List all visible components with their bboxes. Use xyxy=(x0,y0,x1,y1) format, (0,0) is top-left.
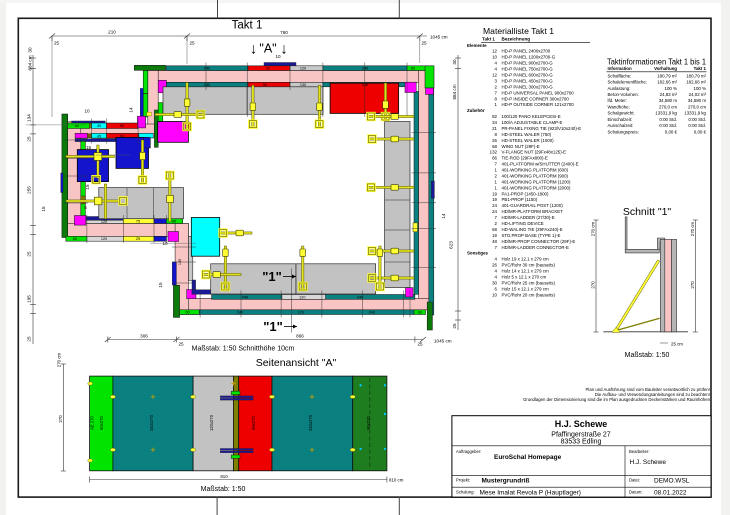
svg-text:1045 cm: 1045 cm xyxy=(434,339,452,344)
svg-text:Schalelementfläche:: Schalelementfläche: xyxy=(608,80,648,85)
svg-text:DEMO.WSL: DEMO.WSL xyxy=(654,478,690,485)
svg-text:90: 90 xyxy=(120,134,124,138)
svg-text:195: 195 xyxy=(27,295,32,303)
svg-text:401-WORKING PLATFORM (600): 401-WORKING PLATFORM (600) xyxy=(502,168,569,173)
svg-text:401-GUARDRAIL POST (1200): 401-GUARDRAIL POST (1200) xyxy=(502,203,564,208)
svg-text:H.J. Schewe: H.J. Schewe xyxy=(555,419,608,429)
svg-text:306: 306 xyxy=(140,334,148,339)
svg-text:WING NUT (29F)-E: WING NUT (29F)-E xyxy=(502,144,540,149)
svg-text:20: 20 xyxy=(266,66,270,70)
svg-text:60: 60 xyxy=(185,311,189,315)
svg-text:Schalfläche:: Schalfläche: xyxy=(608,73,632,78)
svg-text:25: 25 xyxy=(178,342,184,347)
svg-text:255: 255 xyxy=(27,186,32,194)
svg-text:PA1-PROP (1450-1800): PA1-PROP (1450-1800) xyxy=(502,191,549,196)
svg-text:45: 45 xyxy=(97,134,101,138)
svg-text:PB1-PROP (1150): PB1-PROP (1150) xyxy=(502,197,538,202)
svg-text:760: 760 xyxy=(280,30,288,35)
svg-text:240: 240 xyxy=(242,296,248,300)
svg-text:25: 25 xyxy=(452,323,457,329)
svg-text:Zubehör: Zubehör xyxy=(467,108,485,113)
svg-text:401-WORKING PLATFORM (2000): 401-WORKING PLATFORM (2000) xyxy=(502,185,572,190)
svg-text:Takt 1: Takt 1 xyxy=(232,20,263,32)
svg-text:68: 68 xyxy=(492,227,497,232)
svg-text:0,00 €: 0,00 € xyxy=(665,129,678,134)
svg-text:10: 10 xyxy=(162,241,168,246)
svg-text:Einschalzeit:: Einschalzeit: xyxy=(608,117,633,122)
svg-text:Elemente: Elemente xyxy=(467,43,487,48)
svg-text:V-FLANGE NUT (29Fx48x125)-E: V-FLANGE NUT (29Fx48x125)-E xyxy=(502,150,567,155)
svg-text:623: 623 xyxy=(449,241,454,249)
svg-text:30: 30 xyxy=(28,47,33,53)
svg-text:270: 270 xyxy=(591,281,596,289)
svg-text:25: 25 xyxy=(27,251,32,257)
svg-text:30: 30 xyxy=(452,59,457,65)
svg-text:60: 60 xyxy=(411,66,415,70)
svg-text:08.01.2022: 08.01.2022 xyxy=(654,490,687,497)
svg-text:Holz 5 x 12.1 x 270 cm: Holz 5 x 12.1 x 270 cm xyxy=(502,275,547,280)
svg-text:HD/MR-LADDER (27/30)-E: HD/MR-LADDER (27/30)-E xyxy=(502,215,555,220)
svg-text:60x270: 60x270 xyxy=(99,415,104,429)
svg-text:90: 90 xyxy=(120,124,124,128)
svg-text:HD-P PANEL 900x2700-G: HD-P PANEL 900x2700-G xyxy=(502,61,554,66)
svg-text:19: 19 xyxy=(492,191,497,196)
svg-text:HD-P PANEL 300x2700-G: HD-P PANEL 300x2700-G xyxy=(502,84,554,89)
svg-text:HD-P UNIVERSAL PANEL 900x2700: HD-P UNIVERSAL PANEL 900x2700 xyxy=(502,90,575,95)
svg-text:"A": "A" xyxy=(259,42,276,56)
svg-text:66: 66 xyxy=(492,156,497,161)
svg-text:Wandhöhe:: Wandhöhe: xyxy=(608,105,630,110)
svg-text:HD/MR-LADDER CONNECTOR-E: HD/MR-LADDER CONNECTOR-E xyxy=(502,245,570,250)
svg-text:AE 270: AE 270 xyxy=(90,415,95,429)
svg-text:Materialliste Takt 1: Materialliste Takt 1 xyxy=(483,26,554,36)
svg-text:24,82 m³: 24,82 m³ xyxy=(660,92,678,97)
svg-text:12: 12 xyxy=(492,73,497,78)
svg-text:120: 120 xyxy=(101,237,107,241)
svg-text:Sonstiges: Sonstiges xyxy=(467,251,489,256)
svg-text:"1": "1" xyxy=(262,269,282,284)
svg-text:25: 25 xyxy=(27,336,32,342)
svg-text:60: 60 xyxy=(418,311,422,315)
svg-text:Mustergrundriß: Mustergrundriß xyxy=(482,478,530,485)
svg-text:HD-P PANEL 450x2700-G: HD-P PANEL 450x2700-G xyxy=(502,78,554,83)
svg-text:26: 26 xyxy=(492,138,497,143)
svg-text:21: 21 xyxy=(492,126,497,131)
svg-text:182,66 m²: 182,66 m² xyxy=(686,80,706,85)
svg-text:Maßstab: 1:50 Schnitthöhe 1: Maßstab: 1:50 Schnitthöhe 10cm xyxy=(192,346,295,353)
svg-text:240: 240 xyxy=(204,83,210,87)
svg-text:83533 Edling: 83533 Edling xyxy=(561,439,602,446)
svg-text:45: 45 xyxy=(97,124,101,128)
svg-text:270,0 cm: 270,0 cm xyxy=(688,105,706,110)
svg-text:0:00 Std.: 0:00 Std. xyxy=(688,117,706,122)
svg-text:HD-P PANEL 750x2700-G: HD-P PANEL 750x2700-G xyxy=(502,67,554,72)
svg-text:34: 34 xyxy=(492,120,497,125)
svg-text:25: 25 xyxy=(421,41,427,46)
svg-text:240x270: 240x270 xyxy=(308,414,313,431)
svg-text:Schalungspreis:: Schalungspreis: xyxy=(608,129,639,134)
svg-text:15: 15 xyxy=(41,206,46,212)
svg-text:10: 10 xyxy=(275,54,281,59)
svg-text:25: 25 xyxy=(136,237,140,241)
svg-text:0:00 Std.: 0:00 Std. xyxy=(688,123,706,128)
svg-text:"1": "1" xyxy=(263,319,283,334)
svg-text:HD-P PANEL 1200x2700-G: HD-P PANEL 1200x2700-G xyxy=(502,55,556,60)
svg-text:Takt 1: Takt 1 xyxy=(482,37,495,42)
svg-text:Pfaffingerstraße 27: Pfaffingerstraße 27 xyxy=(551,432,611,439)
svg-text:68: 68 xyxy=(492,144,497,149)
svg-text:100 %: 100 % xyxy=(665,86,678,91)
svg-text:Holz 15 x 12.1 x 279 cm: Holz 15 x 12.1 x 279 cm xyxy=(502,286,549,291)
svg-text:↓: ↓ xyxy=(250,41,258,58)
svg-text:1045 cm: 1045 cm xyxy=(430,35,448,40)
svg-text:120x270: 120x270 xyxy=(209,414,214,431)
svg-text:130: 130 xyxy=(178,259,182,265)
svg-text:25: 25 xyxy=(27,136,32,142)
svg-text:HD/MR-PROP CONNECTOR (29F)-E: HD/MR-PROP CONNECTOR (29F)-E xyxy=(502,239,576,244)
svg-text:HD-LIFTING DEVICE: HD-LIFTING DEVICE xyxy=(502,221,544,226)
svg-text:120: 120 xyxy=(101,220,107,224)
svg-text:Seitenansicht "A": Seitenansicht "A" xyxy=(256,357,337,369)
svg-text:Ausschalzeit:: Ausschalzeit: xyxy=(608,123,634,128)
svg-text:240x270: 240x270 xyxy=(149,414,154,431)
svg-text:14: 14 xyxy=(129,107,134,113)
svg-text:HD-P PANEL 2400x2700: HD-P PANEL 2400x2700 xyxy=(502,49,551,54)
svg-text:↓: ↓ xyxy=(280,41,288,58)
svg-text:PR-PANEL FIXING TIE (923/V10x2: PR-PANEL FIXING TIE (923/V10x240)-E xyxy=(502,126,582,131)
svg-text:60: 60 xyxy=(73,237,77,241)
svg-text:182,66 m²: 182,66 m² xyxy=(657,80,677,85)
svg-text:34,580 m: 34,580 m xyxy=(688,98,707,103)
svg-text:401-WORKING PLATFORM (1200): 401-WORKING PLATFORM (1200) xyxy=(502,179,572,184)
svg-text:134: 134 xyxy=(27,114,32,122)
svg-text:14: 14 xyxy=(441,213,446,219)
svg-text:Maßstab: 1:50: Maßstab: 1:50 xyxy=(625,352,670,359)
svg-text:19: 19 xyxy=(492,233,497,238)
svg-text:90x270: 90x270 xyxy=(251,415,256,429)
svg-text:120: 120 xyxy=(299,296,305,300)
svg-text:HD-WALING TIE (29FAx240)-E: HD-WALING TIE (29FAx240)-E xyxy=(502,227,563,232)
svg-text:25: 25 xyxy=(189,41,195,46)
svg-text:48: 48 xyxy=(492,239,497,244)
svg-text:Datum:: Datum: xyxy=(629,490,643,495)
svg-text:90x270: 90x270 xyxy=(366,415,371,429)
svg-text:Beton-Volumen:: Beton-Volumen: xyxy=(608,92,639,97)
svg-text:Holz 19 x 12.1 x 279 cm: Holz 19 x 12.1 x 279 cm xyxy=(502,257,549,262)
svg-text:PVC/Rohr 20 cm (bauseits): PVC/Rohr 20 cm (bauseits) xyxy=(502,292,556,297)
svg-text:13331,9 kg: 13331,9 kg xyxy=(655,111,677,116)
svg-text:210: 210 xyxy=(108,30,116,35)
svg-text:Bearbeiter:: Bearbeiter: xyxy=(629,449,649,454)
svg-text:30: 30 xyxy=(492,280,497,285)
svg-text:HD/MR-PLATFORM BRACKET: HD/MR-PLATFORM BRACKET xyxy=(502,209,564,214)
svg-text:270 cm: 270 cm xyxy=(57,352,62,367)
svg-text:120: 120 xyxy=(298,311,304,315)
svg-text:240: 240 xyxy=(357,296,363,300)
svg-text:Information: Information xyxy=(608,66,632,71)
svg-text:Grundlagen der Dimensionierung: Grundlagen der Dimensionierung sind die … xyxy=(523,397,711,402)
svg-text:75: 75 xyxy=(136,220,140,224)
svg-text:HD-P PANEL 600x2700-G: HD-P PANEL 600x2700-G xyxy=(502,73,554,78)
svg-text:HD-P OUTSIDE CORNER 121x2700: HD-P OUTSIDE CORNER 121x2700 xyxy=(502,102,575,107)
svg-text:401-WORKING PLATFORM (900): 401-WORKING PLATFORM (900) xyxy=(502,174,569,179)
svg-text:HD-P INSIDE CORNER 300x2700: HD-P INSIDE CORNER 300x2700 xyxy=(502,96,570,101)
svg-text:684 cm: 684 cm xyxy=(28,55,33,70)
svg-text:HD-STEEL WALER (1000): HD-STEEL WALER (1000) xyxy=(502,138,555,143)
svg-text:82: 82 xyxy=(492,114,497,119)
svg-text:130: 130 xyxy=(300,83,306,87)
svg-text:24: 24 xyxy=(492,209,497,214)
svg-text:19: 19 xyxy=(492,197,497,202)
svg-text:10: 10 xyxy=(492,292,497,297)
svg-text:120: 120 xyxy=(300,66,306,70)
svg-text:240: 240 xyxy=(362,66,368,70)
svg-text:lfd. Meter:: lfd. Meter: xyxy=(608,98,628,103)
svg-text:EuroSchal Homepage: EuroSchal Homepage xyxy=(494,454,562,461)
svg-text:866: 866 xyxy=(296,334,304,339)
svg-text:810: 810 xyxy=(220,474,228,479)
svg-text:240: 240 xyxy=(237,311,243,315)
svg-text:12: 12 xyxy=(492,49,497,54)
svg-text:100 %: 100 % xyxy=(694,86,707,91)
svg-text:Schnitt "1": Schnitt "1" xyxy=(623,206,672,218)
svg-text:Maßstab: 1:50: Maßstab: 1:50 xyxy=(201,486,246,493)
svg-text:180,79 m²: 180,79 m² xyxy=(686,73,706,78)
svg-text:132: 132 xyxy=(490,150,498,155)
svg-text:Schalgewicht:: Schalgewicht: xyxy=(608,111,635,116)
svg-text:15: 15 xyxy=(86,145,92,150)
svg-text:24,02 m³: 24,02 m³ xyxy=(689,92,707,97)
svg-text:Takt 1: Takt 1 xyxy=(694,66,707,71)
svg-text:Projekt:: Projekt: xyxy=(456,478,470,483)
svg-text:810 cm: 810 cm xyxy=(389,478,404,483)
svg-text:Auslastung:: Auslastung: xyxy=(608,86,631,91)
svg-text:684 cm: 684 cm xyxy=(452,84,457,99)
svg-text:25: 25 xyxy=(54,41,60,46)
svg-text:0,00 €: 0,00 € xyxy=(694,129,707,134)
svg-text:Bezeichnung: Bezeichnung xyxy=(502,37,531,42)
svg-text:10: 10 xyxy=(84,109,90,114)
svg-text:10: 10 xyxy=(492,55,497,60)
svg-text:Vorhaltung: Vorhaltung xyxy=(654,66,677,71)
svg-text:60: 60 xyxy=(172,220,176,224)
svg-text:5: 5 xyxy=(84,205,87,210)
svg-text:HD-STEEL WALER (750): HD-STEEL WALER (750) xyxy=(502,132,552,137)
svg-text:PVC/Rohr 25 cm (bauseits): PVC/Rohr 25 cm (bauseits) xyxy=(502,280,556,285)
svg-text:13331,9 kg: 13331,9 kg xyxy=(684,111,706,116)
svg-text:STD.PROP BASE (TYPE 1)-E: STD.PROP BASE (TYPE 1)-E xyxy=(502,233,561,238)
svg-text:240: 240 xyxy=(204,66,210,70)
svg-text:270,0 cm: 270,0 cm xyxy=(659,105,677,110)
svg-text:25: 25 xyxy=(417,342,423,347)
svg-text:Schalung:: Schalung: xyxy=(456,490,475,495)
svg-text:Holz 14 x 12.1 x 279 cm: Holz 14 x 12.1 x 279 cm xyxy=(502,269,549,274)
svg-text:100/A ADJUSTABLE CLAMP-E: 100/A ADJUSTABLE CLAMP-E xyxy=(502,120,563,125)
svg-text:Datei:: Datei: xyxy=(629,478,640,483)
svg-text:180,79 m²: 180,79 m² xyxy=(657,73,677,78)
svg-text:Auftraggeber:: Auftraggeber: xyxy=(456,449,481,454)
svg-text:TIE-ROD (29FAx800)-E: TIE-ROD (29FAx800)-E xyxy=(502,156,548,161)
svg-text:26: 26 xyxy=(492,263,497,268)
svg-text:34,580 m: 34,580 m xyxy=(659,98,678,103)
svg-text:270: 270 xyxy=(58,415,63,423)
svg-text:240: 240 xyxy=(362,83,368,87)
svg-text:PVC/Rohr 30 cm (bauseits): PVC/Rohr 30 cm (bauseits) xyxy=(502,263,556,268)
svg-text:15: 15 xyxy=(158,282,163,288)
svg-text:24: 24 xyxy=(492,203,497,208)
svg-text:0:00 Std.: 0:00 Std. xyxy=(659,117,677,122)
svg-text:25 cm: 25 cm xyxy=(671,342,683,347)
svg-text:270 cm: 270 cm xyxy=(591,221,596,236)
svg-text:15: 15 xyxy=(85,184,90,190)
svg-text:H.J. Schewe: H.J. Schewe xyxy=(630,459,667,466)
svg-text:240: 240 xyxy=(369,311,375,315)
svg-text:100/120 PANO KELEPCESI-E: 100/120 PANO KELEPCESI-E xyxy=(502,114,561,119)
svg-text:270 cm: 270 cm xyxy=(690,221,695,236)
svg-text:401-PLATFORM w/SHUTTER (2400)-: 401-PLATFORM w/SHUTTER (2400)-E xyxy=(502,162,579,167)
svg-text:270: 270 xyxy=(690,281,695,289)
svg-text:Mese Imalat Revola P (Hauptlag: Mese Imalat Revola P (Hauptlager) xyxy=(480,490,581,497)
svg-text:90: 90 xyxy=(263,83,267,87)
svg-text:0:00 Std.: 0:00 Std. xyxy=(659,123,677,128)
